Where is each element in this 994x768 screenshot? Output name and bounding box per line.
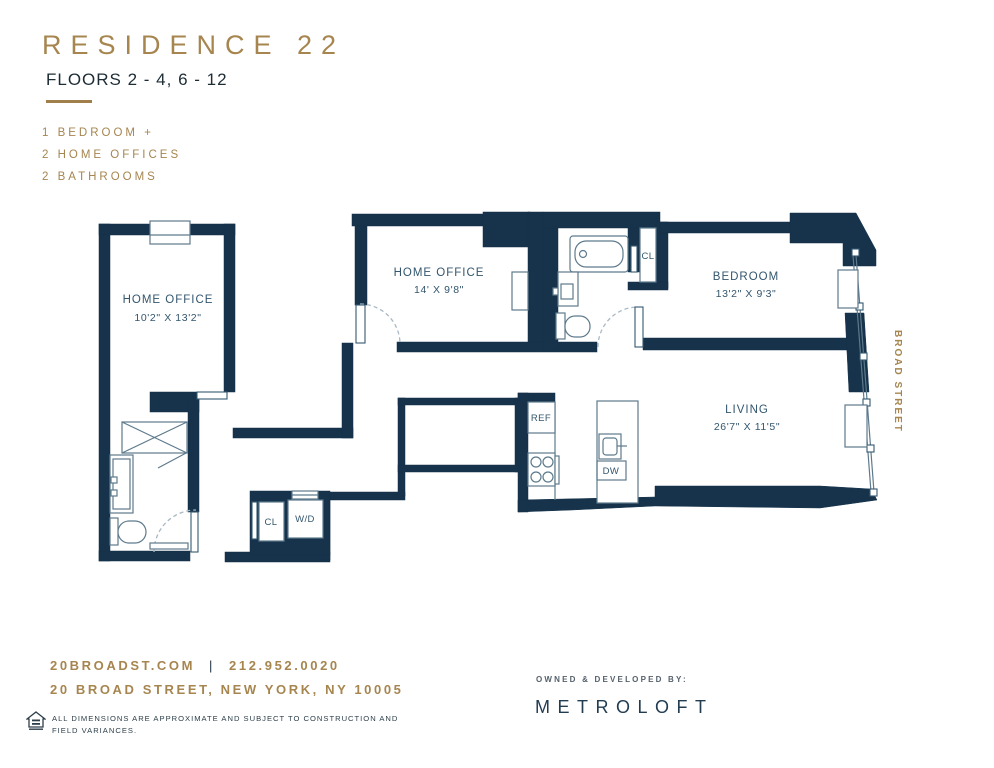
bath2-toilet: [110, 518, 118, 545]
bath1-toilet: [556, 313, 565, 339]
home-office-1-dims: 10'2" X 13'2": [134, 312, 201, 324]
closet-door-foyer: [252, 502, 257, 539]
wd-label: W/D: [295, 514, 315, 525]
bedroom-label: BEDROOM: [713, 271, 779, 283]
address-line: 20 BROAD STREET, NEW YORK, NY 10005: [50, 682, 404, 697]
office2-closet: [512, 272, 528, 310]
dw-label: DW: [603, 466, 620, 477]
disclaimer-line-2: FIELD VARIANCES.: [52, 725, 398, 737]
equal-housing-icon: [26, 711, 46, 731]
home-office-2-label: HOME OFFICE: [394, 267, 485, 279]
website-link[interactable]: 20BROADST.COM: [50, 658, 195, 673]
walls: [99, 212, 877, 562]
living-label: LIVING: [725, 404, 769, 416]
closet-door-bath: [631, 246, 637, 272]
developed-by-label: OWNED & DEVELOPED BY:: [536, 675, 688, 684]
developer-logo: METROLOFT: [535, 697, 714, 718]
radiator-living: [845, 405, 867, 447]
radiator-bedroom: [838, 270, 858, 308]
cl-foyer-label: CL: [265, 517, 278, 528]
phone-number[interactable]: 212.952.0020: [229, 658, 340, 673]
floor-plan: HOME OFFICE 10'2" X 13'2" HOME OFFICE 14…: [0, 0, 994, 768]
windows-and-glazing: [150, 221, 877, 496]
disclaimer: ALL DIMENSIONS ARE APPROXIMATE AND SUBJE…: [52, 713, 398, 736]
cl-bath-label: CL: [642, 251, 655, 262]
home-office-2-dims: 14' X 9'8": [414, 284, 464, 296]
street-label: BROAD STREET: [892, 330, 903, 433]
living-dims: 26'7" X 11'5": [714, 421, 780, 433]
home-office-1-label: HOME OFFICE: [123, 294, 214, 306]
contact-line: 20BROADST.COM|212.952.0020: [50, 658, 340, 673]
ref-label: REF: [531, 413, 551, 424]
window-home-office-1: [150, 221, 190, 244]
pocket-door-office-1: [197, 392, 227, 399]
disclaimer-line-1: ALL DIMENSIONS ARE APPROXIMATE AND SUBJE…: [52, 713, 398, 725]
bedroom-dims: 13'2" X 9'3": [716, 288, 777, 300]
contact-separator: |: [209, 658, 215, 673]
